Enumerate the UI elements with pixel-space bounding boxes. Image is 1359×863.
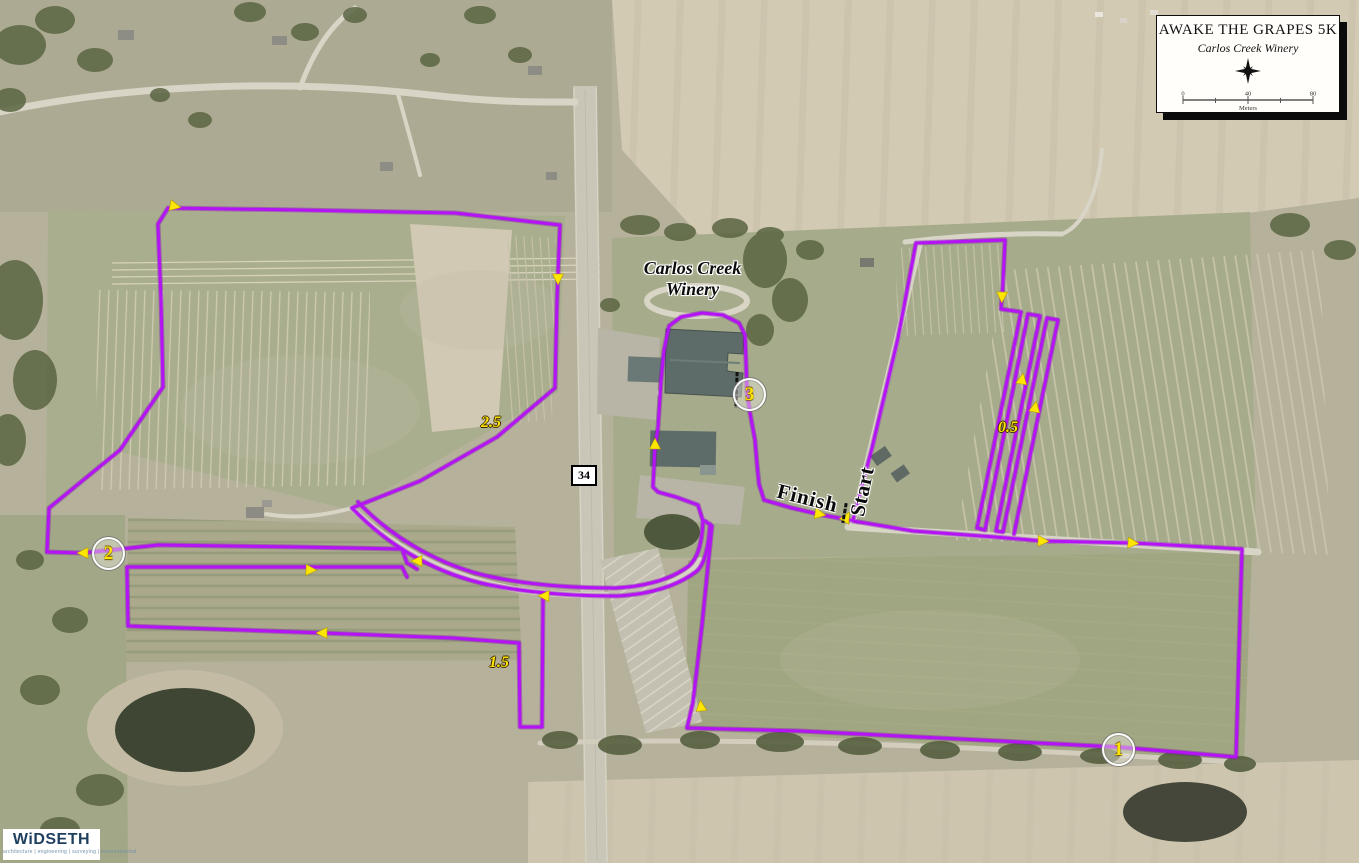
scale-tick-mid: 40	[1245, 91, 1252, 98]
winery-map-label-line1: Carlos Creek	[615, 258, 770, 279]
highway-34-shield: 34	[571, 465, 597, 486]
mile-marker-2: 2	[92, 537, 125, 570]
race-map: Carlos Creek Winery Finish Start 34 1 2 …	[0, 0, 1359, 863]
map-subtitle: Carlos Creek Winery	[1157, 41, 1339, 56]
scale-bar: 0 40 80 Meters	[1168, 91, 1328, 111]
mile-marker-3: 3	[733, 378, 766, 411]
background-terrain	[0, 0, 1359, 863]
aerial-basemap	[0, 0, 1359, 863]
compass-rose-icon	[1157, 56, 1339, 86]
widseth-logo: WiDSETH architecture | engineering | sur…	[3, 829, 100, 860]
scale-tick-left: 0	[1181, 91, 1184, 98]
distance-label-1-5: 1.5	[489, 654, 509, 672]
winery-map-label-line2: Winery	[615, 279, 770, 300]
map-title: AWAKE THE GRAPES 5K	[1157, 22, 1339, 39]
distance-label-2-5: 2.5	[481, 414, 501, 432]
map-title-block: AWAKE THE GRAPES 5K Carlos Creek Winery …	[1156, 15, 1340, 113]
distance-label-0-5: 0.5	[998, 419, 1018, 437]
scale-tick-right: 80	[1310, 91, 1317, 98]
widseth-logo-tagline: architecture | engineering | surveying |…	[3, 849, 100, 855]
widseth-logo-name: WiDSETH	[3, 831, 100, 849]
winery-map-label: Carlos Creek Winery	[615, 258, 770, 300]
mile-marker-1: 1	[1102, 733, 1135, 766]
scale-units: Meters	[1239, 105, 1258, 111]
